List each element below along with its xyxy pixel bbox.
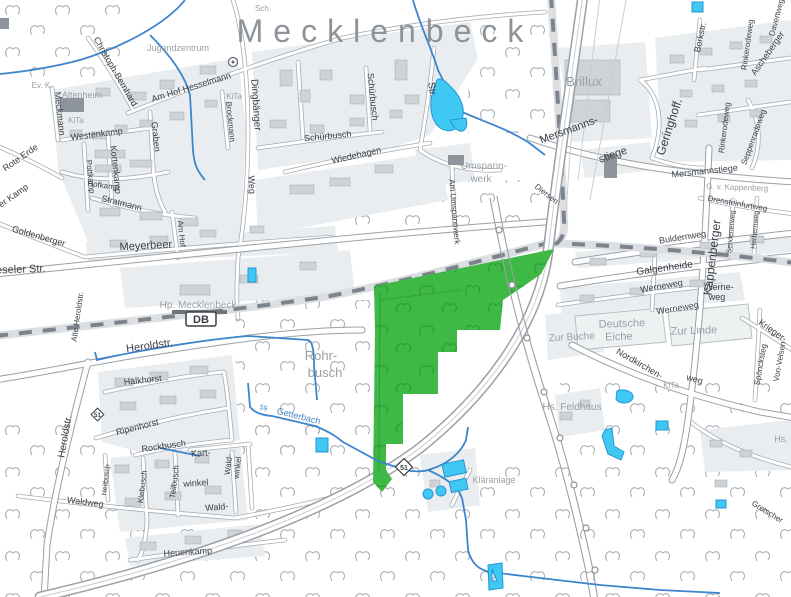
label-sch: Sch. (255, 4, 271, 13)
label-weseler-str: Weseler Str. (0, 263, 46, 277)
label-altenheim: Altenheim (62, 90, 102, 100)
label-jugendzentrum: Jugendzentrum (147, 43, 209, 53)
label-kartwinkel-a: Kart- (191, 447, 211, 458)
db-badge-label: DB (193, 314, 209, 326)
label-er-kamp: er Kamp (0, 182, 30, 210)
label-gut-kappenberg: G. v. Kappenberg (706, 182, 768, 193)
label-kartwinkel-b: winkel (182, 477, 209, 489)
chapel-icon (229, 58, 238, 67)
label-rote-erde: Rote Erde (1, 142, 40, 173)
label-alte-heroldstr: Alte Heroldstr. (70, 291, 86, 342)
map-canvas[interactable]: DB 51 51 Mecklenbeck Brillux Mersmanns- … (0, 0, 791, 597)
label-brillux: Brillux (566, 74, 602, 89)
label-rohrbusch-b: busch (308, 365, 343, 380)
label-umspannwerk-a: Umspann- (461, 161, 507, 172)
label-rohrbusch-a: Rohr- (305, 348, 338, 363)
label-kita-east: KiTa (663, 381, 679, 390)
label-zur-linde: Zur Linde (670, 324, 717, 338)
b51-small-badge-label: 51 (94, 413, 101, 419)
label-wald: Wald- (205, 501, 229, 513)
label-kita-1: KiTa (68, 116, 84, 125)
label-umspannwerk-b: werk (469, 174, 492, 185)
label-werneweg-2b: weg (708, 292, 726, 302)
label-dingbaenger-weg: Weg (246, 175, 257, 194)
pond-sail (488, 563, 503, 590)
label-deutsche-eiche-1: Deutsche (598, 317, 645, 331)
city-map: DB 51 51 Mecklenbeck Brillux Mersmanns- … (0, 0, 791, 597)
district-title: Mecklenbeck (237, 13, 534, 49)
label-hs-feldhaus: Hs. Feldhaus (543, 402, 602, 413)
label-dingbaenger: Dingbänger (248, 79, 263, 132)
label-goldenberger: Goldenberger (11, 224, 67, 249)
b51-badge-label: 51 (400, 465, 408, 472)
label-ev-k: Ev. K. (32, 81, 53, 90)
label-werneweg-2a: Werne- (704, 282, 733, 292)
label-str-v: Str. (425, 82, 438, 98)
label-klaeranlage: Kläranlage (472, 475, 515, 485)
label-deutsche-eiche-2: Eiche (605, 331, 633, 344)
label-hp-mecklenbeck: Hp. Mecklenbeck (160, 300, 238, 311)
db-station-badge: DB (186, 312, 216, 326)
label-kita-2: KiTa (226, 92, 242, 101)
label-hs-east: Hs. (774, 434, 788, 444)
